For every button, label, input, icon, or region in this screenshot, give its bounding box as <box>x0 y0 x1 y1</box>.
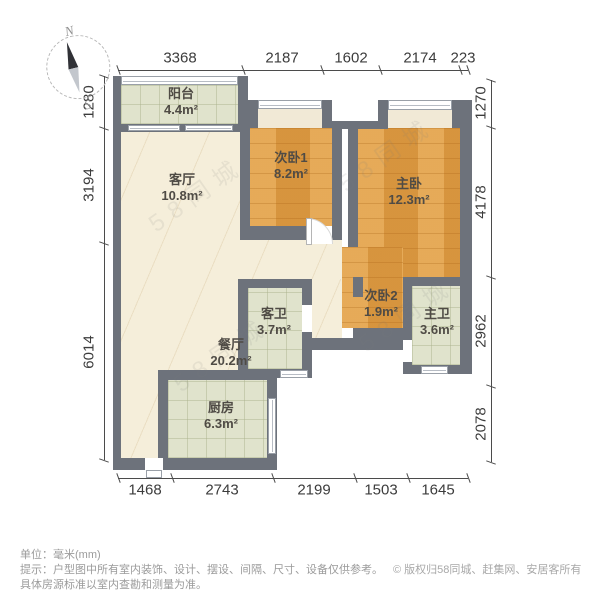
room-area: 6.3m² <box>204 416 238 432</box>
wall-bay1-right <box>322 100 332 128</box>
copyright-text: © 版权归58同城、赶集网、安居客所有 <box>393 561 581 577</box>
balcony-slider-left <box>128 125 180 131</box>
wall-bedroom1-bottom <box>240 226 307 240</box>
room-area: 4.4m² <box>164 102 198 118</box>
dim-right-1: 1270 <box>473 86 490 119</box>
compass-icon: N S <box>30 14 129 126</box>
wall-bay2-left <box>378 100 388 128</box>
dimension-line-left <box>104 76 105 460</box>
tip-line2: 具体房源标准以室内查勘和测量为准。 <box>20 576 207 592</box>
room-name: 次卧2 <box>364 288 397 303</box>
balcony-slider-right <box>185 125 233 131</box>
room-area: 10.8m² <box>161 188 202 204</box>
wall-right-exterior <box>460 100 472 374</box>
room-area: 3.6m² <box>420 322 454 338</box>
guest-bath-door-opening <box>302 305 312 332</box>
wall-guestbath-top <box>238 279 312 288</box>
wall-bottom-exterior <box>113 458 277 470</box>
dim-right-4: 2078 <box>473 407 490 440</box>
room-label-master: 主卧 12.3m² <box>388 176 429 208</box>
room-area: 12.3m² <box>388 192 429 208</box>
room-area: 20.2m² <box>210 353 251 369</box>
tip-line1: 提示：户型图中所有室内装饰、设计、摆设、间隔、尺寸、设备仅供参考。 <box>20 561 383 577</box>
room-label-kitchen: 厨房 6.3m² <box>204 400 238 432</box>
dim-bottom-1: 1468 <box>128 482 161 499</box>
master-bay-floor <box>388 110 452 128</box>
wall-bedroom1-right <box>332 121 342 240</box>
dim-top-1: 3368 <box>163 50 196 67</box>
room-name: 主卫 <box>424 306 450 321</box>
hallway-floor-lower <box>312 279 342 338</box>
room-name: 客厅 <box>169 172 195 187</box>
unit-note: 单位：毫米(mm) <box>20 546 101 562</box>
room-label-bedroom1: 次卧1 8.2m² <box>274 150 308 182</box>
room-name: 次卧1 <box>274 150 307 165</box>
wall-master-left <box>348 121 358 247</box>
dim-top-3: 1602 <box>334 50 367 67</box>
dimension-line-bottom <box>118 478 468 479</box>
dim-right-3: 2962 <box>473 314 490 347</box>
room-name: 阳台 <box>168 86 194 101</box>
dim-bottom-3: 2199 <box>297 482 330 499</box>
floor-plan-canvas: 阳台 4.4m² 客厅 10.8m² 次卧1 8.2m² 主卧 12.3m² 次… <box>0 0 600 600</box>
room-label-dining: 餐厅 20.2m² <box>210 337 251 369</box>
dim-bottom-5: 1645 <box>421 482 454 499</box>
wall-bedroom2-stub <box>353 277 363 297</box>
room-name: 厨房 <box>208 400 234 415</box>
dim-left-3: 6014 <box>81 335 98 368</box>
room-name: 餐厅 <box>218 337 244 352</box>
entry-threshold <box>146 470 162 478</box>
wall-bedroom1-left <box>240 124 250 240</box>
dim-bottom-2: 2743 <box>205 482 238 499</box>
dim-top-2: 2187 <box>265 50 298 67</box>
room-name: 主卧 <box>396 176 422 191</box>
wall-kitchen-left <box>158 370 168 466</box>
wall-corridor-bottom <box>307 338 412 350</box>
balcony-window <box>121 76 238 85</box>
dim-left-2: 3194 <box>81 168 98 201</box>
wall-masterbath-top <box>403 277 471 286</box>
hallway-floor-upper <box>240 240 342 279</box>
guest-bath-window <box>280 370 308 378</box>
room-area: 8.2m² <box>274 166 308 182</box>
room-label-balcony: 阳台 4.4m² <box>164 86 198 118</box>
wall-left-exterior <box>113 76 121 470</box>
bedroom1-bay-window <box>258 100 322 109</box>
dimension-line-right <box>491 80 492 462</box>
dimension-line-top <box>118 70 468 71</box>
dim-top-5: 223 <box>450 50 475 67</box>
room-area: 1.9m² <box>364 304 398 320</box>
wall-kitchen-top <box>158 370 277 380</box>
room-label-bedroom2: 次卧2 1.9m² <box>364 288 398 320</box>
dim-bottom-4: 1503 <box>364 482 397 499</box>
room-area: 3.7m² <box>257 322 291 338</box>
dim-right-2: 4178 <box>473 185 490 218</box>
bedroom1-bay-floor <box>258 109 322 128</box>
bedroom1-door-leaf <box>306 218 312 245</box>
room-label-master-bath: 主卫 3.6m² <box>420 306 454 338</box>
dim-top-4: 2174 <box>403 50 436 67</box>
master-bath-window <box>421 366 448 374</box>
master-bath-door-opening <box>403 340 412 362</box>
room-label-guest-bath: 客卫 3.7m² <box>257 306 291 338</box>
kitchen-window <box>268 398 276 454</box>
master-bay-window <box>388 100 452 110</box>
room-label-living: 客厅 10.8m² <box>161 172 202 204</box>
compass-south-label: S <box>83 96 93 113</box>
room-name: 客卫 <box>261 306 287 321</box>
entry-door-opening <box>145 458 163 470</box>
